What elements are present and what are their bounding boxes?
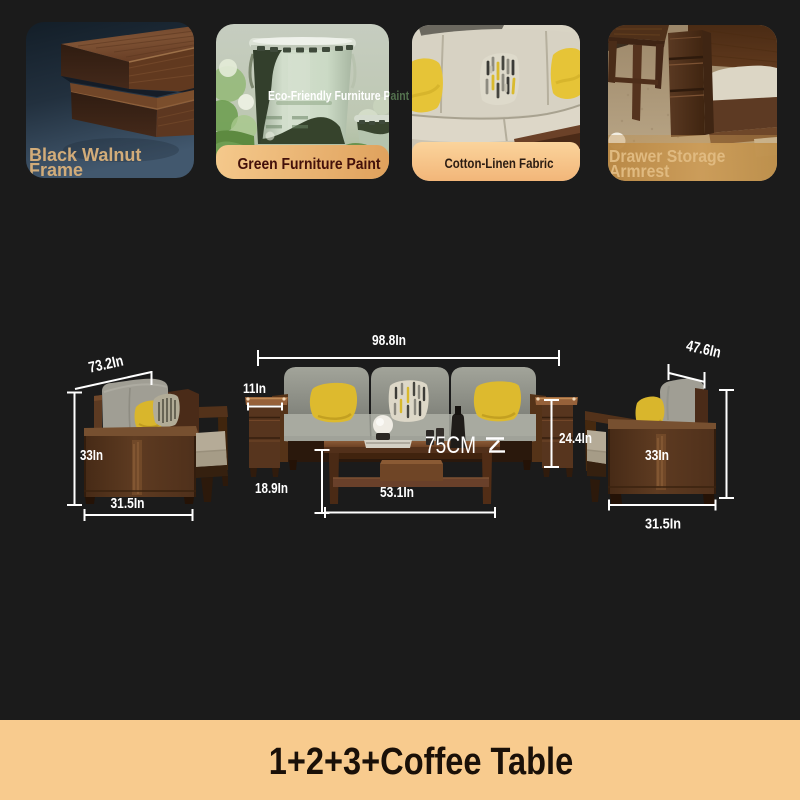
svg-text:18.9In: 18.9In [255,480,288,497]
svg-text:33In: 33In [80,447,103,464]
svg-text:24.4In: 24.4In [559,430,592,447]
svg-text:53.1In: 53.1In [380,484,414,501]
svg-text:73.2In: 73.2In [87,353,125,377]
svg-text:11In: 11In [243,380,266,396]
svg-text:47.6In: 47.6In [685,338,723,362]
svg-text:33In: 33In [645,447,669,464]
svg-text:98.8In: 98.8In [372,332,406,349]
svg-text:75CM: 75CM [425,432,476,459]
svg-text:31.5In: 31.5In [111,495,145,512]
svg-text:31.5In: 31.5In [645,516,681,533]
